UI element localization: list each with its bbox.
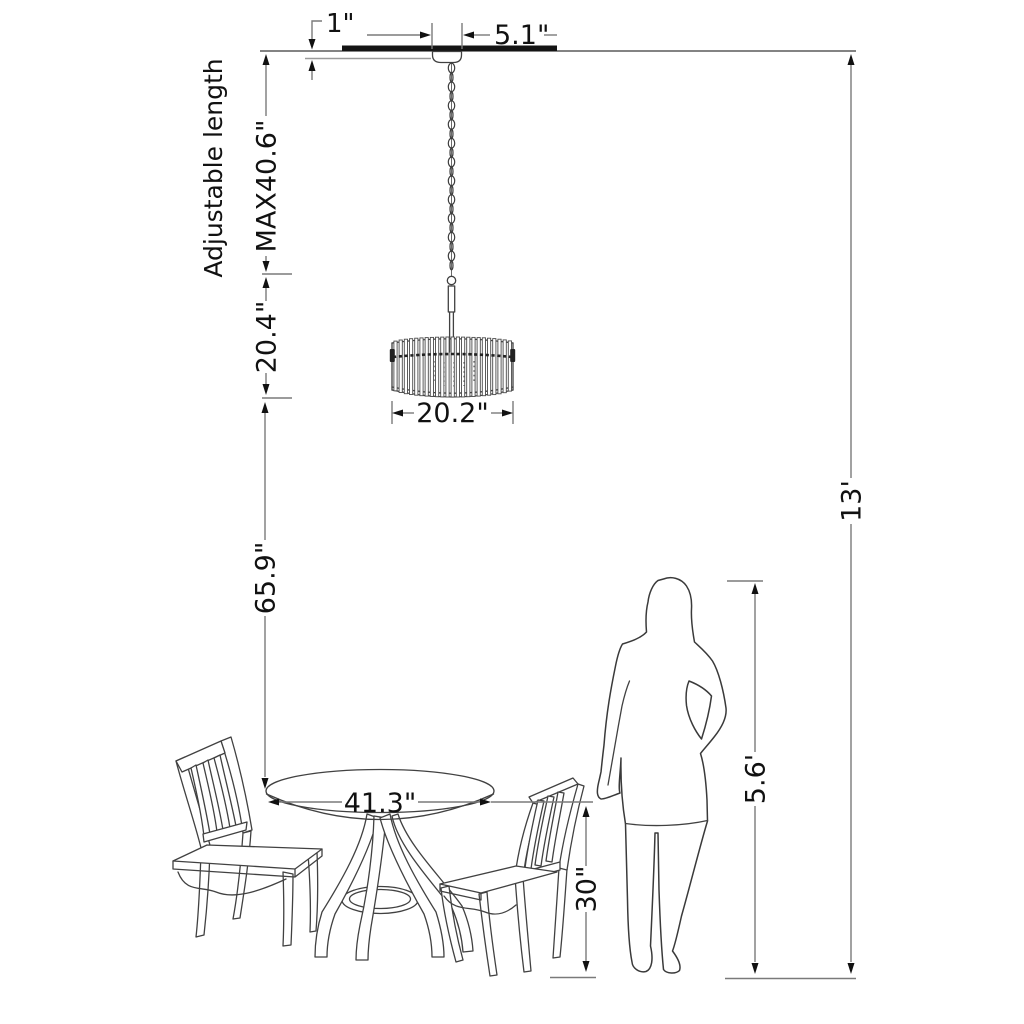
band-clamp-left — [390, 349, 395, 362]
canopy — [433, 52, 462, 63]
label-shade-diameter: 20.2" — [416, 398, 489, 429]
label-table-diameter: 41.3" — [344, 788, 417, 819]
band-clamp-right — [510, 349, 515, 362]
label-fixture-height: 20.4" — [251, 301, 282, 374]
diagram-canvas: 1" 5.1" Adjustable length MAX40.6" 20.4"… — [0, 0, 1024, 1024]
label-clearance: 65.9" — [250, 542, 281, 615]
label-ceiling-height: 13' — [836, 480, 867, 522]
label-canopy-width: 5.1" — [494, 20, 549, 51]
label-adjustable-length: Adjustable length — [199, 58, 228, 277]
label-table-height: 30" — [571, 866, 602, 913]
dimension-diagram: 1" 5.1" Adjustable length MAX40.6" 20.4"… — [0, 0, 1024, 1024]
label-max-length: MAX40.6" — [251, 120, 282, 253]
label-canopy-height: 1" — [326, 9, 355, 39]
label-person-height: 5.6' — [740, 754, 771, 804]
